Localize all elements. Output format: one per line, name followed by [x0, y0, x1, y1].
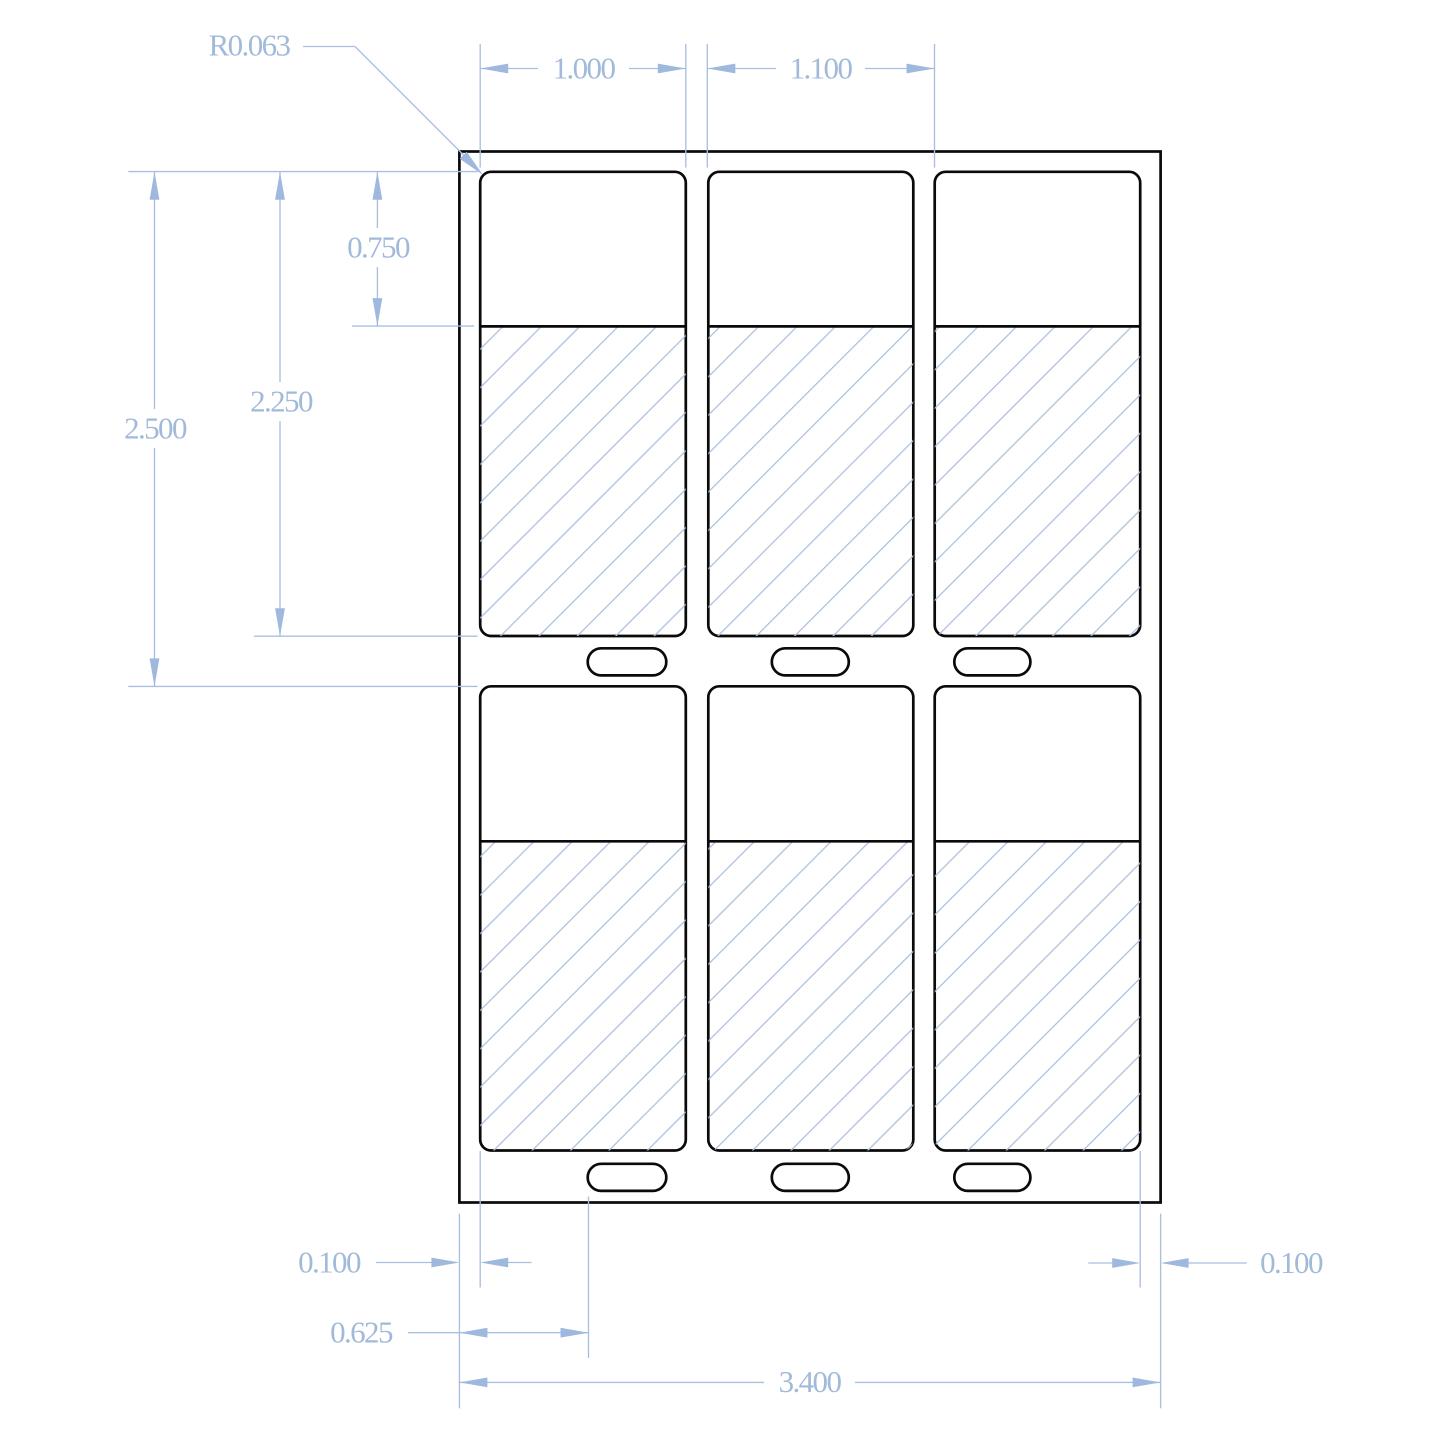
- svg-text:R0.063: R0.063: [209, 27, 291, 62]
- svg-text:3.400: 3.400: [779, 1364, 842, 1399]
- svg-text:1.000: 1.000: [553, 50, 616, 85]
- svg-text:0.750: 0.750: [347, 229, 410, 264]
- svg-text:0.100: 0.100: [1260, 1245, 1323, 1280]
- svg-text:0.625: 0.625: [330, 1315, 393, 1350]
- svg-text:1.100: 1.100: [790, 50, 853, 85]
- svg-text:2.250: 2.250: [250, 384, 313, 419]
- svg-text:0.100: 0.100: [298, 1244, 361, 1279]
- svg-text:2.500: 2.500: [124, 410, 187, 445]
